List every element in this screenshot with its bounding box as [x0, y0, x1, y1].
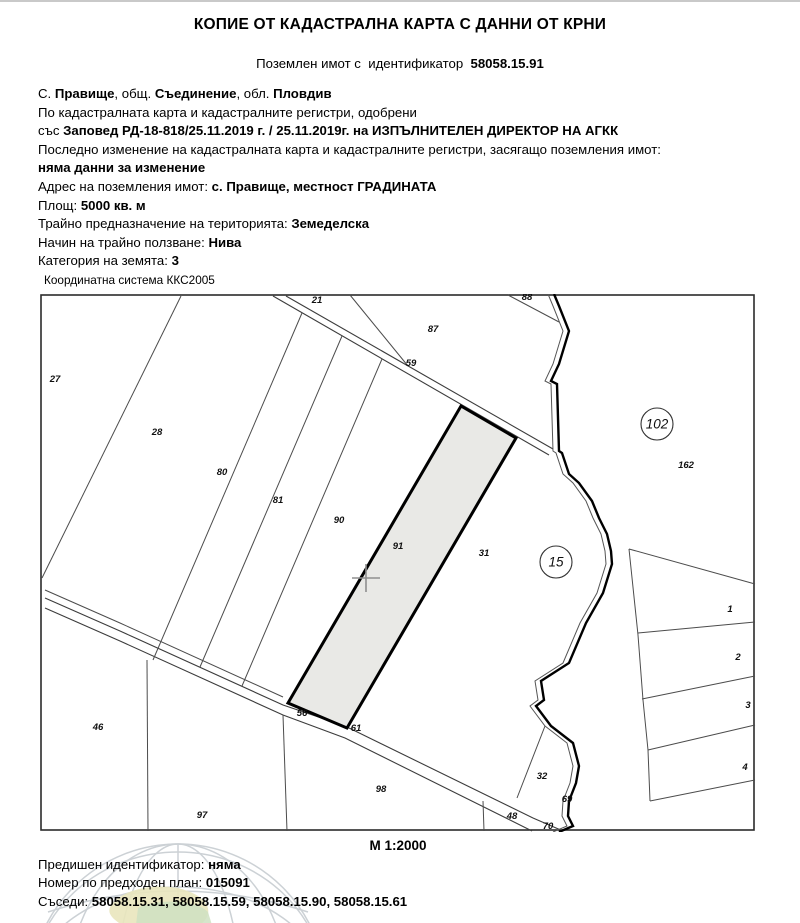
text-line: със Заповед РД-18-818/25.11.2019 г. / 25…	[38, 122, 661, 141]
road-upper	[273, 296, 553, 455]
parcel-label-59: 59	[406, 358, 417, 369]
value-bold: 3	[172, 253, 179, 268]
highlighted-parcel-91	[288, 406, 516, 728]
text-line: Категория на земята: 3	[38, 252, 661, 271]
coordinate-system-label: Координатна система ККС2005	[44, 273, 215, 287]
parcel-label-80: 80	[217, 467, 228, 478]
text-line: Площ: 5000 кв. м	[38, 197, 661, 216]
value-bold: Съединение	[155, 86, 237, 101]
text-segment: Поземлен имот с идентификатор	[256, 56, 470, 71]
parcel-label-3: 3	[745, 700, 751, 711]
parcel-label-21: 21	[311, 295, 323, 306]
parcel-label-56: 56	[297, 708, 308, 719]
property-footer-block: Предишен идентификатор: нямаНомер по пре…	[38, 856, 407, 911]
parcel-label-91: 91	[393, 541, 404, 552]
text-segment: Начин на трайно ползване:	[38, 235, 208, 250]
value-bold: няма	[208, 857, 241, 872]
value-bold: 58058.15.31, 58058.15.59, 58058.15.90, 5…	[92, 894, 407, 909]
property-info-block: С. Правище, общ. Съединение, обл. Пловди…	[38, 85, 661, 271]
text-line: няма данни за изменение	[38, 159, 661, 178]
text-segment: С.	[38, 86, 55, 101]
value-bold: с. Правище, местност ГРАДИНАТА	[212, 179, 437, 194]
parcel-label-97: 97	[197, 810, 208, 821]
parcel-label-32: 32	[537, 771, 548, 782]
text-line: Последно изменение на кадастралната карт…	[38, 141, 661, 160]
map-scale-label: М 1:2000	[40, 838, 756, 853]
region-label-15: 15	[548, 555, 564, 570]
cadastral-map: 2728808190913121598788162469798324869705…	[40, 294, 756, 832]
parcel-label-2: 2	[734, 652, 741, 663]
parcel-label-1: 1	[727, 604, 732, 615]
value-bold: Заповед РД-18-818/25.11.2019 г. / 25.11.…	[63, 123, 618, 138]
text-line: Трайно предназначение на територията: Зе…	[38, 215, 661, 234]
text-line: С. Правище, общ. Съединение, обл. Пловди…	[38, 85, 661, 104]
parcel-label-81: 81	[273, 495, 284, 506]
parcel-label-88: 88	[522, 294, 533, 303]
text-line: Съседи: 58058.15.31, 58058.15.59, 58058.…	[38, 893, 407, 911]
text-segment: Трайно предназначение на територията:	[38, 216, 291, 231]
text-line: По кадастралната карта и кадастралните р…	[38, 104, 661, 123]
text-segment: Предишен идентификатор:	[38, 857, 208, 872]
value-bold: Правище	[55, 86, 115, 101]
text-line: Начин на трайно ползване: Нива	[38, 234, 661, 253]
parcel-label-90: 90	[334, 515, 345, 526]
text-segment: , обл.	[236, 86, 273, 101]
property-identifier-line: Поземлен имот с идентификатор 58058.15.9…	[0, 56, 800, 71]
value-bold: Пловдив	[273, 86, 331, 101]
parcel-label-48: 48	[506, 811, 518, 822]
text-line: Предишен идентификатор: няма	[38, 856, 407, 874]
text-segment: Съседи:	[38, 894, 92, 909]
parcel-label-162: 162	[678, 460, 695, 471]
value-bold: Земеделска	[291, 216, 369, 231]
value-bold: 58058.15.91	[471, 56, 544, 71]
parcel-label-70: 70	[543, 821, 554, 832]
parcel-label-28: 28	[151, 427, 163, 438]
parcel-label-4: 4	[741, 762, 748, 773]
text-segment: По кадастралната карта и кадастралните р…	[38, 105, 417, 120]
value-bold: Нива	[208, 235, 241, 250]
region-label-102: 102	[646, 417, 669, 432]
parcel-label-27: 27	[49, 374, 61, 385]
parcel-label-46: 46	[92, 722, 104, 733]
value-bold: няма данни за изменение	[38, 160, 205, 175]
value-bold: 015091	[206, 875, 250, 890]
text-segment: Номер по предходен план:	[38, 875, 206, 890]
parcel-label-61: 61	[351, 723, 362, 734]
river	[530, 294, 612, 832]
text-segment: със	[38, 123, 63, 138]
parcel-label-31: 31	[479, 548, 490, 559]
value-bold: 5000 кв. м	[81, 198, 146, 213]
text-segment: Категория на земята:	[38, 253, 172, 268]
document-title: КОПИЕ ОТ КАДАСТРАЛНА КАРТА С ДАННИ ОТ КР…	[0, 16, 800, 34]
text-segment: Последно изменение на кадастралната карт…	[38, 142, 661, 157]
parcel-label-98: 98	[376, 784, 387, 795]
parcel-label-69: 69	[562, 794, 573, 805]
text-segment: , общ.	[114, 86, 154, 101]
parcel-label-87: 87	[428, 324, 439, 335]
text-line: Номер по предходен план: 015091	[38, 874, 407, 892]
cadastral-map-drawing: 2728808190913121598788162469798324869705…	[40, 294, 756, 832]
text-line: Адрес на поземления имот: с. Правище, ме…	[38, 178, 661, 197]
text-segment: Площ:	[38, 198, 81, 213]
text-segment: Адрес на поземления имот:	[38, 179, 212, 194]
cadastral-document-page: КОПИЕ ОТ КАДАСТРАЛНА КАРТА С ДАННИ ОТ КР…	[0, 0, 800, 923]
